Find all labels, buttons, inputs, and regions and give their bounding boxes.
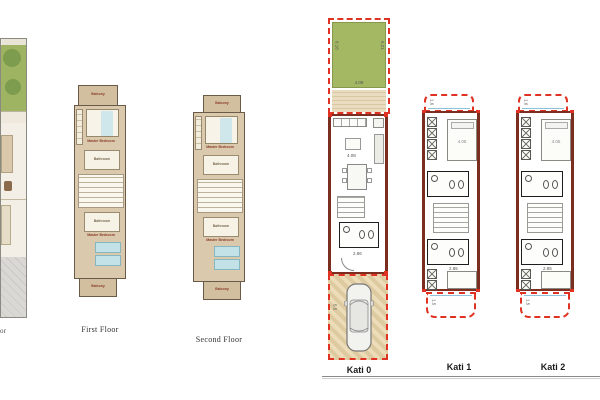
stairs <box>197 179 243 213</box>
glass-railing <box>522 108 564 109</box>
wall-section-marker <box>476 289 480 292</box>
tree-icon <box>5 79 21 95</box>
bidet-icon <box>543 180 549 189</box>
stairs <box>527 203 563 233</box>
balcony-label: Balcony <box>80 285 116 289</box>
planter-grille <box>427 139 437 149</box>
sink-icon <box>431 243 438 250</box>
planter-grille <box>521 150 531 160</box>
master-bedroom-label: Master Bedroom <box>194 146 246 150</box>
planter-grille <box>427 117 437 127</box>
stairs <box>433 203 469 233</box>
chair <box>342 178 347 183</box>
wall-section-marker <box>328 114 332 117</box>
glass-railing <box>430 295 472 296</box>
kati1-label: Kati 1 <box>430 362 488 372</box>
kati1-body: 4.05 2.85 <box>422 111 480 291</box>
bathroom <box>521 171 563 197</box>
wall-section-marker <box>570 110 574 113</box>
garage-dim: 5.5 <box>332 304 337 310</box>
glass-railing <box>428 108 470 109</box>
double-bed: 4.05 <box>541 119 571 161</box>
planter-grille <box>521 269 531 279</box>
planter-grille <box>427 128 437 138</box>
chair <box>342 168 347 173</box>
single-bed <box>214 259 240 270</box>
bathroom-label: Bathroom <box>85 158 119 162</box>
bidet-icon <box>449 248 455 257</box>
sink-icon <box>525 243 532 250</box>
kati0-body: 4.08 2.86 <box>328 114 388 274</box>
balcony-top: 1.6 <box>424 94 474 112</box>
double-bed <box>447 271 477 289</box>
balcony-top: Balcony <box>78 85 118 106</box>
first-floor-caption: First Floor <box>68 325 132 334</box>
balcony-bottom: 1.5 <box>520 292 570 318</box>
stairs <box>337 196 365 218</box>
balcony-label: Balcony <box>79 93 117 97</box>
bathroom-label: Bathroom <box>85 220 119 224</box>
garden-dim-right: 6.21 <box>380 41 385 50</box>
shrub-icon <box>2 38 26 45</box>
sofa <box>374 134 384 164</box>
master-bedroom-label: Master Bedroom <box>194 239 246 243</box>
bathroom: Bathroom <box>84 150 120 170</box>
glass-railing <box>524 295 566 296</box>
garden-dim-bottom: 4.08 <box>333 81 385 86</box>
sofa <box>1 135 13 173</box>
toilet-icon <box>458 180 464 189</box>
planter-grille <box>521 128 531 138</box>
dining-table <box>347 164 367 190</box>
closet <box>195 116 202 150</box>
floorplan-sheet: { "canvas": {"width": 600, "height": 400… <box>0 0 600 400</box>
wall-section-marker <box>476 110 480 113</box>
bed-pillow <box>451 122 474 129</box>
toilet-icon <box>368 230 374 239</box>
kati0-label: Kati 0 <box>328 365 390 375</box>
coffee-table <box>345 138 361 150</box>
garage: 5.5 <box>328 274 388 360</box>
balcony-dim: 1.6 <box>429 99 434 105</box>
balcony-label: Balcony <box>204 288 240 292</box>
bedroom-dim: 4.05 <box>542 140 570 145</box>
kitchen-unit <box>373 118 384 128</box>
bathroom: Bathroom <box>84 212 120 232</box>
bathroom-label: Bathroom <box>204 163 238 167</box>
chair <box>367 168 372 173</box>
master-bedroom-label: Master Bedroom <box>75 140 127 144</box>
bedroom-dim: 4.05 <box>448 140 476 145</box>
bathroom <box>427 239 469 265</box>
bathroom-label: Bathroom <box>204 225 238 229</box>
ground-floor-label-fragment: or <box>0 327 14 335</box>
planter-grille <box>427 150 437 160</box>
balcony-label: Balcony <box>204 102 240 106</box>
kati2-plan: 1.6 4.05 2.85 1.5 Kati 2 <box>516 94 588 386</box>
hall-dim: 2.86 <box>353 252 362 257</box>
planter-grille <box>427 269 437 279</box>
bathroom: Bathroom <box>203 217 239 237</box>
tree-icon <box>3 49 21 67</box>
bathroom: Bathroom <box>203 155 239 175</box>
single-bed <box>95 255 121 266</box>
double-bed <box>86 109 119 137</box>
interior-wall-line <box>1 199 27 200</box>
second-floor-plan: Balcony Master Bedroom Bathroom Bathroom… <box>191 95 255 351</box>
toilet-icon <box>458 248 464 257</box>
bathroom <box>427 171 469 197</box>
bidet-icon <box>543 248 549 257</box>
caption-divider-rule <box>322 376 600 379</box>
terrace-strip <box>1 111 27 123</box>
bidet-icon <box>449 180 455 189</box>
wall-section-marker <box>422 110 426 113</box>
bed-duvet <box>101 111 113 136</box>
ground-floor-plan-partial <box>0 38 27 318</box>
garden-dim-left: 6.16 <box>334 41 339 50</box>
toilet-icon <box>552 248 558 257</box>
kati2-label: Kati 2 <box>524 362 582 372</box>
terrace-strip <box>332 90 386 112</box>
sink-icon <box>525 175 532 182</box>
double-bed: 4.05 <box>447 119 477 161</box>
planter-grille <box>521 117 531 127</box>
chair <box>367 178 372 183</box>
kati1-plan: 1.6 4.05 2.85 1.5 Kati 1 <box>422 94 494 386</box>
sink-icon <box>343 226 350 233</box>
bed-duvet <box>220 118 232 143</box>
sink-icon <box>431 175 438 182</box>
single-bed <box>214 246 240 257</box>
planter-grille <box>427 280 437 290</box>
double-bed <box>541 271 571 289</box>
planter-grille <box>521 280 531 290</box>
garden-area: 6.16 6.21 4.08 <box>332 22 386 88</box>
balcony-bottom: Balcony <box>203 281 241 300</box>
paving-area <box>1 257 27 318</box>
toilet-icon <box>552 180 558 189</box>
wall-section-marker <box>384 114 388 117</box>
balcony-top: Balcony <box>203 95 241 113</box>
first-floor-plan: Balcony Master Bedroom Bathroom Bathroom… <box>74 85 138 341</box>
single-bed <box>95 242 121 253</box>
first-floor-body: Master Bedroom Bathroom Bathroom Master … <box>74 105 126 279</box>
balcony-bottom: Balcony <box>79 278 117 297</box>
bathroom <box>521 239 563 265</box>
stairs <box>78 174 124 208</box>
bed-pillow <box>545 122 568 129</box>
balcony-top: 1.6 <box>518 94 568 112</box>
second-floor-caption: Second Floor <box>187 335 251 344</box>
kati0-plan: 6.16 6.21 4.08 4.08 2.86 5.5 <box>328 18 396 380</box>
balcony-dim: 1.6 <box>523 99 528 105</box>
balcony-bottom: 1.5 <box>426 292 476 318</box>
side-table <box>4 181 12 191</box>
master-bedroom-label: Master Bedroom <box>75 234 127 238</box>
second-floor-body: Master Bedroom Bathroom Bathroom Master … <box>193 112 245 282</box>
double-bed <box>205 116 238 144</box>
door-swing-arc <box>341 258 354 271</box>
balcony-dim: 1.5 <box>525 299 530 305</box>
kitchen-strip <box>1 205 11 245</box>
living-dim: 4.08 <box>347 154 356 159</box>
balcony-dim: 1.5 <box>431 299 436 305</box>
planter-grille <box>521 139 531 149</box>
wall-section-marker <box>516 110 520 113</box>
bidet-icon <box>359 230 365 239</box>
kati2-body: 4.05 2.85 <box>516 111 574 291</box>
car-top-view-icon <box>344 282 374 354</box>
wall-section-marker <box>570 289 574 292</box>
kitchen-counter <box>333 118 367 127</box>
bathroom <box>339 222 379 248</box>
